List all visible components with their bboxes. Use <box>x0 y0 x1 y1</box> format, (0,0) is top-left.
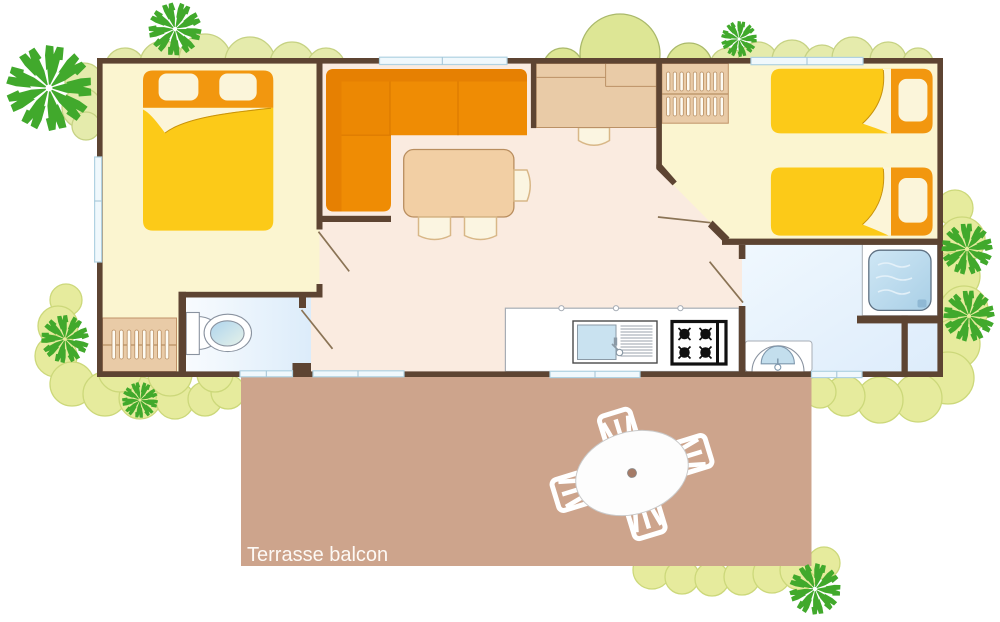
svg-text:Terrasse balcon: Terrasse balcon <box>247 544 388 566</box>
